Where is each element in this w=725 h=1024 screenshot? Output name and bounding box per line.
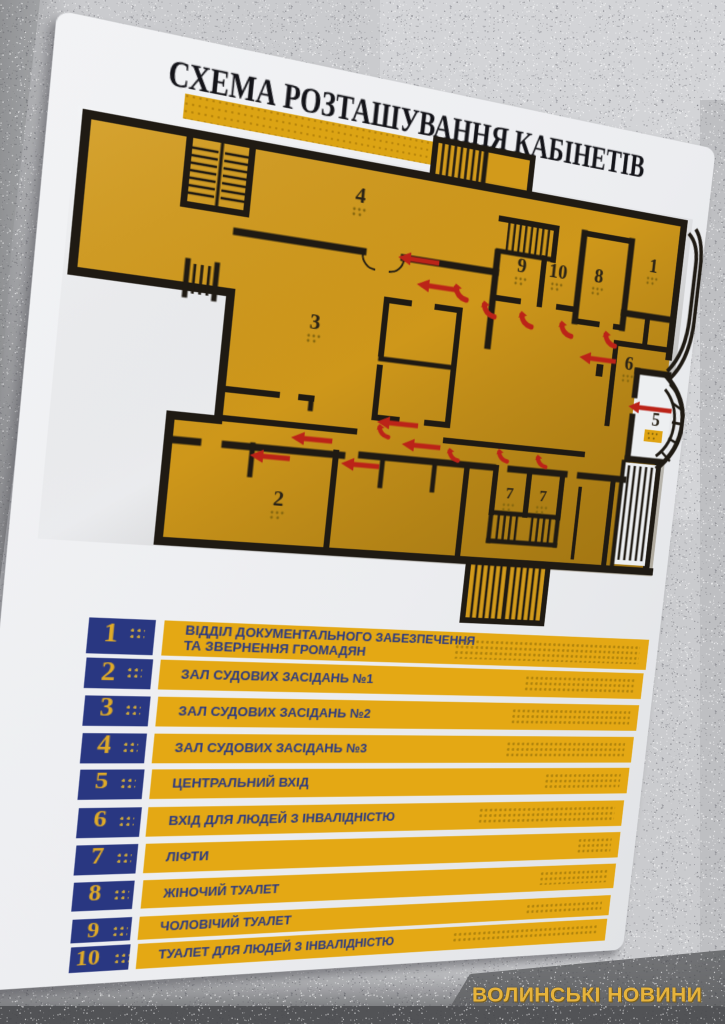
svg-text:10: 10: [548, 260, 569, 284]
svg-text:2: 2: [272, 487, 285, 511]
